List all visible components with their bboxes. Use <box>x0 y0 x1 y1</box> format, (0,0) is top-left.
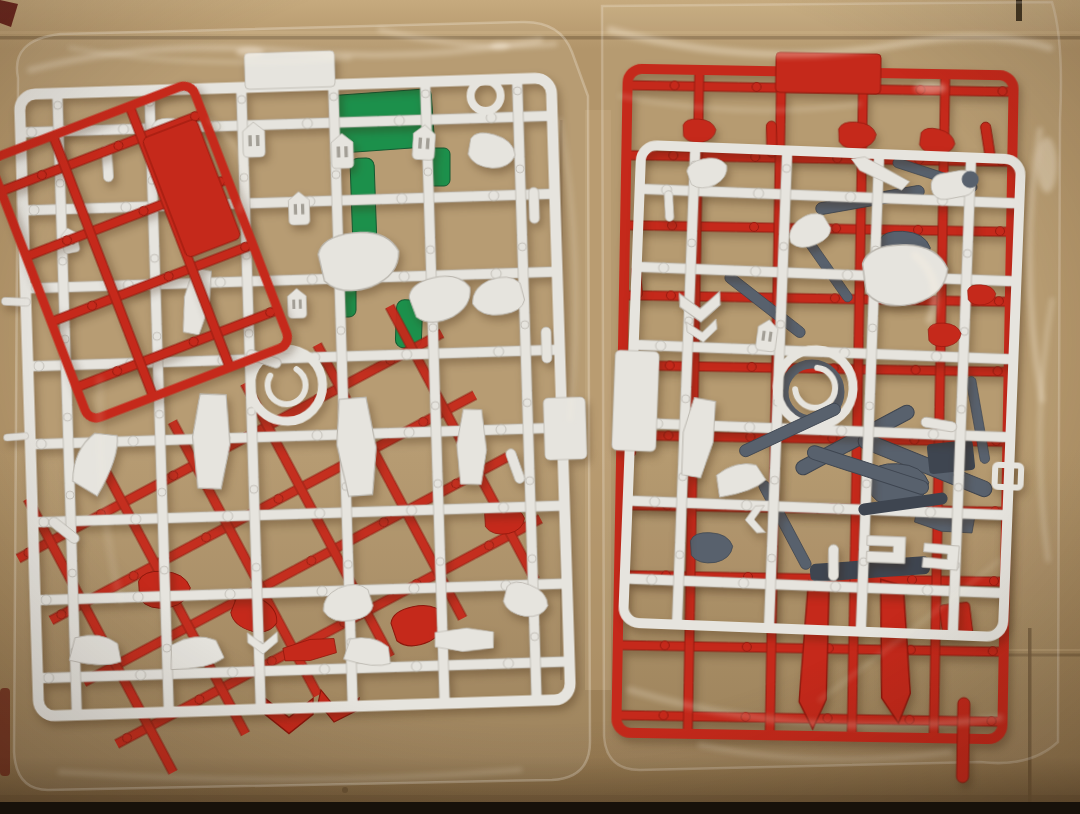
vignette <box>0 0 1080 814</box>
photo-scene <box>0 0 1080 814</box>
photo-canvas <box>0 0 1080 814</box>
bottom-edge-strip <box>0 802 1080 814</box>
